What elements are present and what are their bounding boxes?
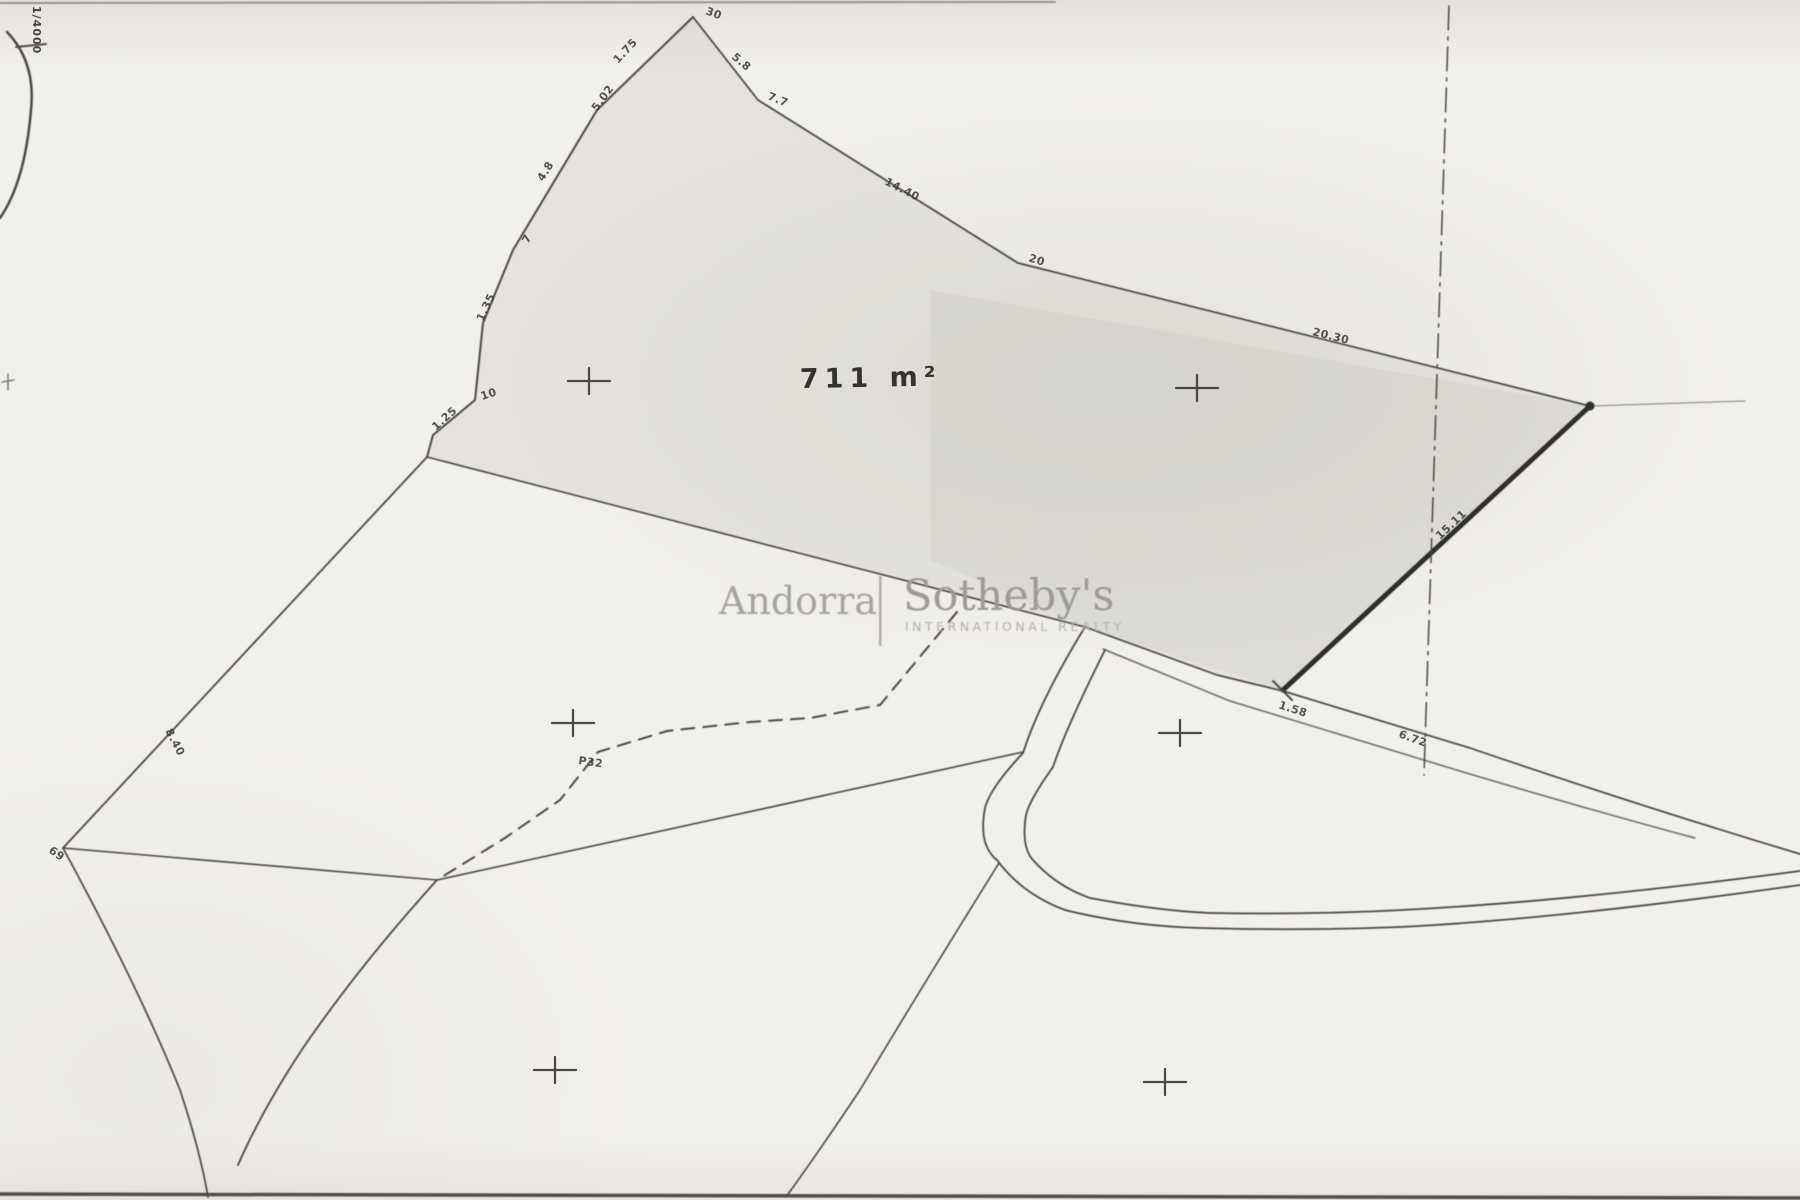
boundary-east-continuation [1590, 401, 1745, 406]
measurement-label: 8.40 [162, 726, 187, 758]
sheet-top-edge [0, 2, 1055, 3]
watermark-tagline: INTERNATIONAL REALTY [905, 619, 1125, 634]
watermark-sothebys: Sotheby's [903, 571, 1114, 621]
west-long-edge [63, 457, 427, 848]
plot-plan-drawing: Andorra Sotheby's INTERNATIONAL REALTY 7… [0, 0, 1800, 1200]
sheet-bottom-edge [0, 1194, 1800, 1198]
measurement-label: 6.72 [1397, 728, 1429, 750]
watermark-divider [879, 576, 882, 646]
watermark: Andorra Sotheby's INTERNATIONAL REALTY [718, 571, 1125, 646]
measurement-label: 30 [704, 5, 724, 23]
grid-cross [534, 1057, 576, 1083]
grid-cross [1144, 1069, 1186, 1095]
grid-cross [1159, 720, 1201, 746]
corner-arc [0, 32, 32, 218]
road-to-bottom-line [786, 863, 999, 1197]
parcel-area-label: 711 m² [800, 362, 942, 395]
junction-south-line [238, 880, 437, 1165]
road-outer-line [983, 627, 1800, 929]
point-label-p32: P32 [578, 754, 604, 770]
scanned-plot-plan: Andorra Sotheby's INTERNATIONAL REALTY 7… [0, 0, 1800, 1200]
measurement-label: 1.75 [611, 36, 640, 66]
measurement-label: 4.8 [535, 159, 557, 184]
road-inner-line [1025, 650, 1800, 914]
grid-cross [552, 710, 594, 736]
wall-top-node [1586, 402, 1595, 411]
dashed-division-line [437, 612, 957, 880]
junction-to-road-line [437, 752, 1023, 880]
west-south-line [63, 848, 208, 1197]
scale-label: 1/4000 [30, 6, 43, 54]
path-strip-lower [1103, 649, 1695, 838]
left-edge-mark [2, 374, 14, 390]
watermark-andorra: Andorra [718, 579, 877, 623]
west-vertex-to-junction [63, 848, 437, 880]
